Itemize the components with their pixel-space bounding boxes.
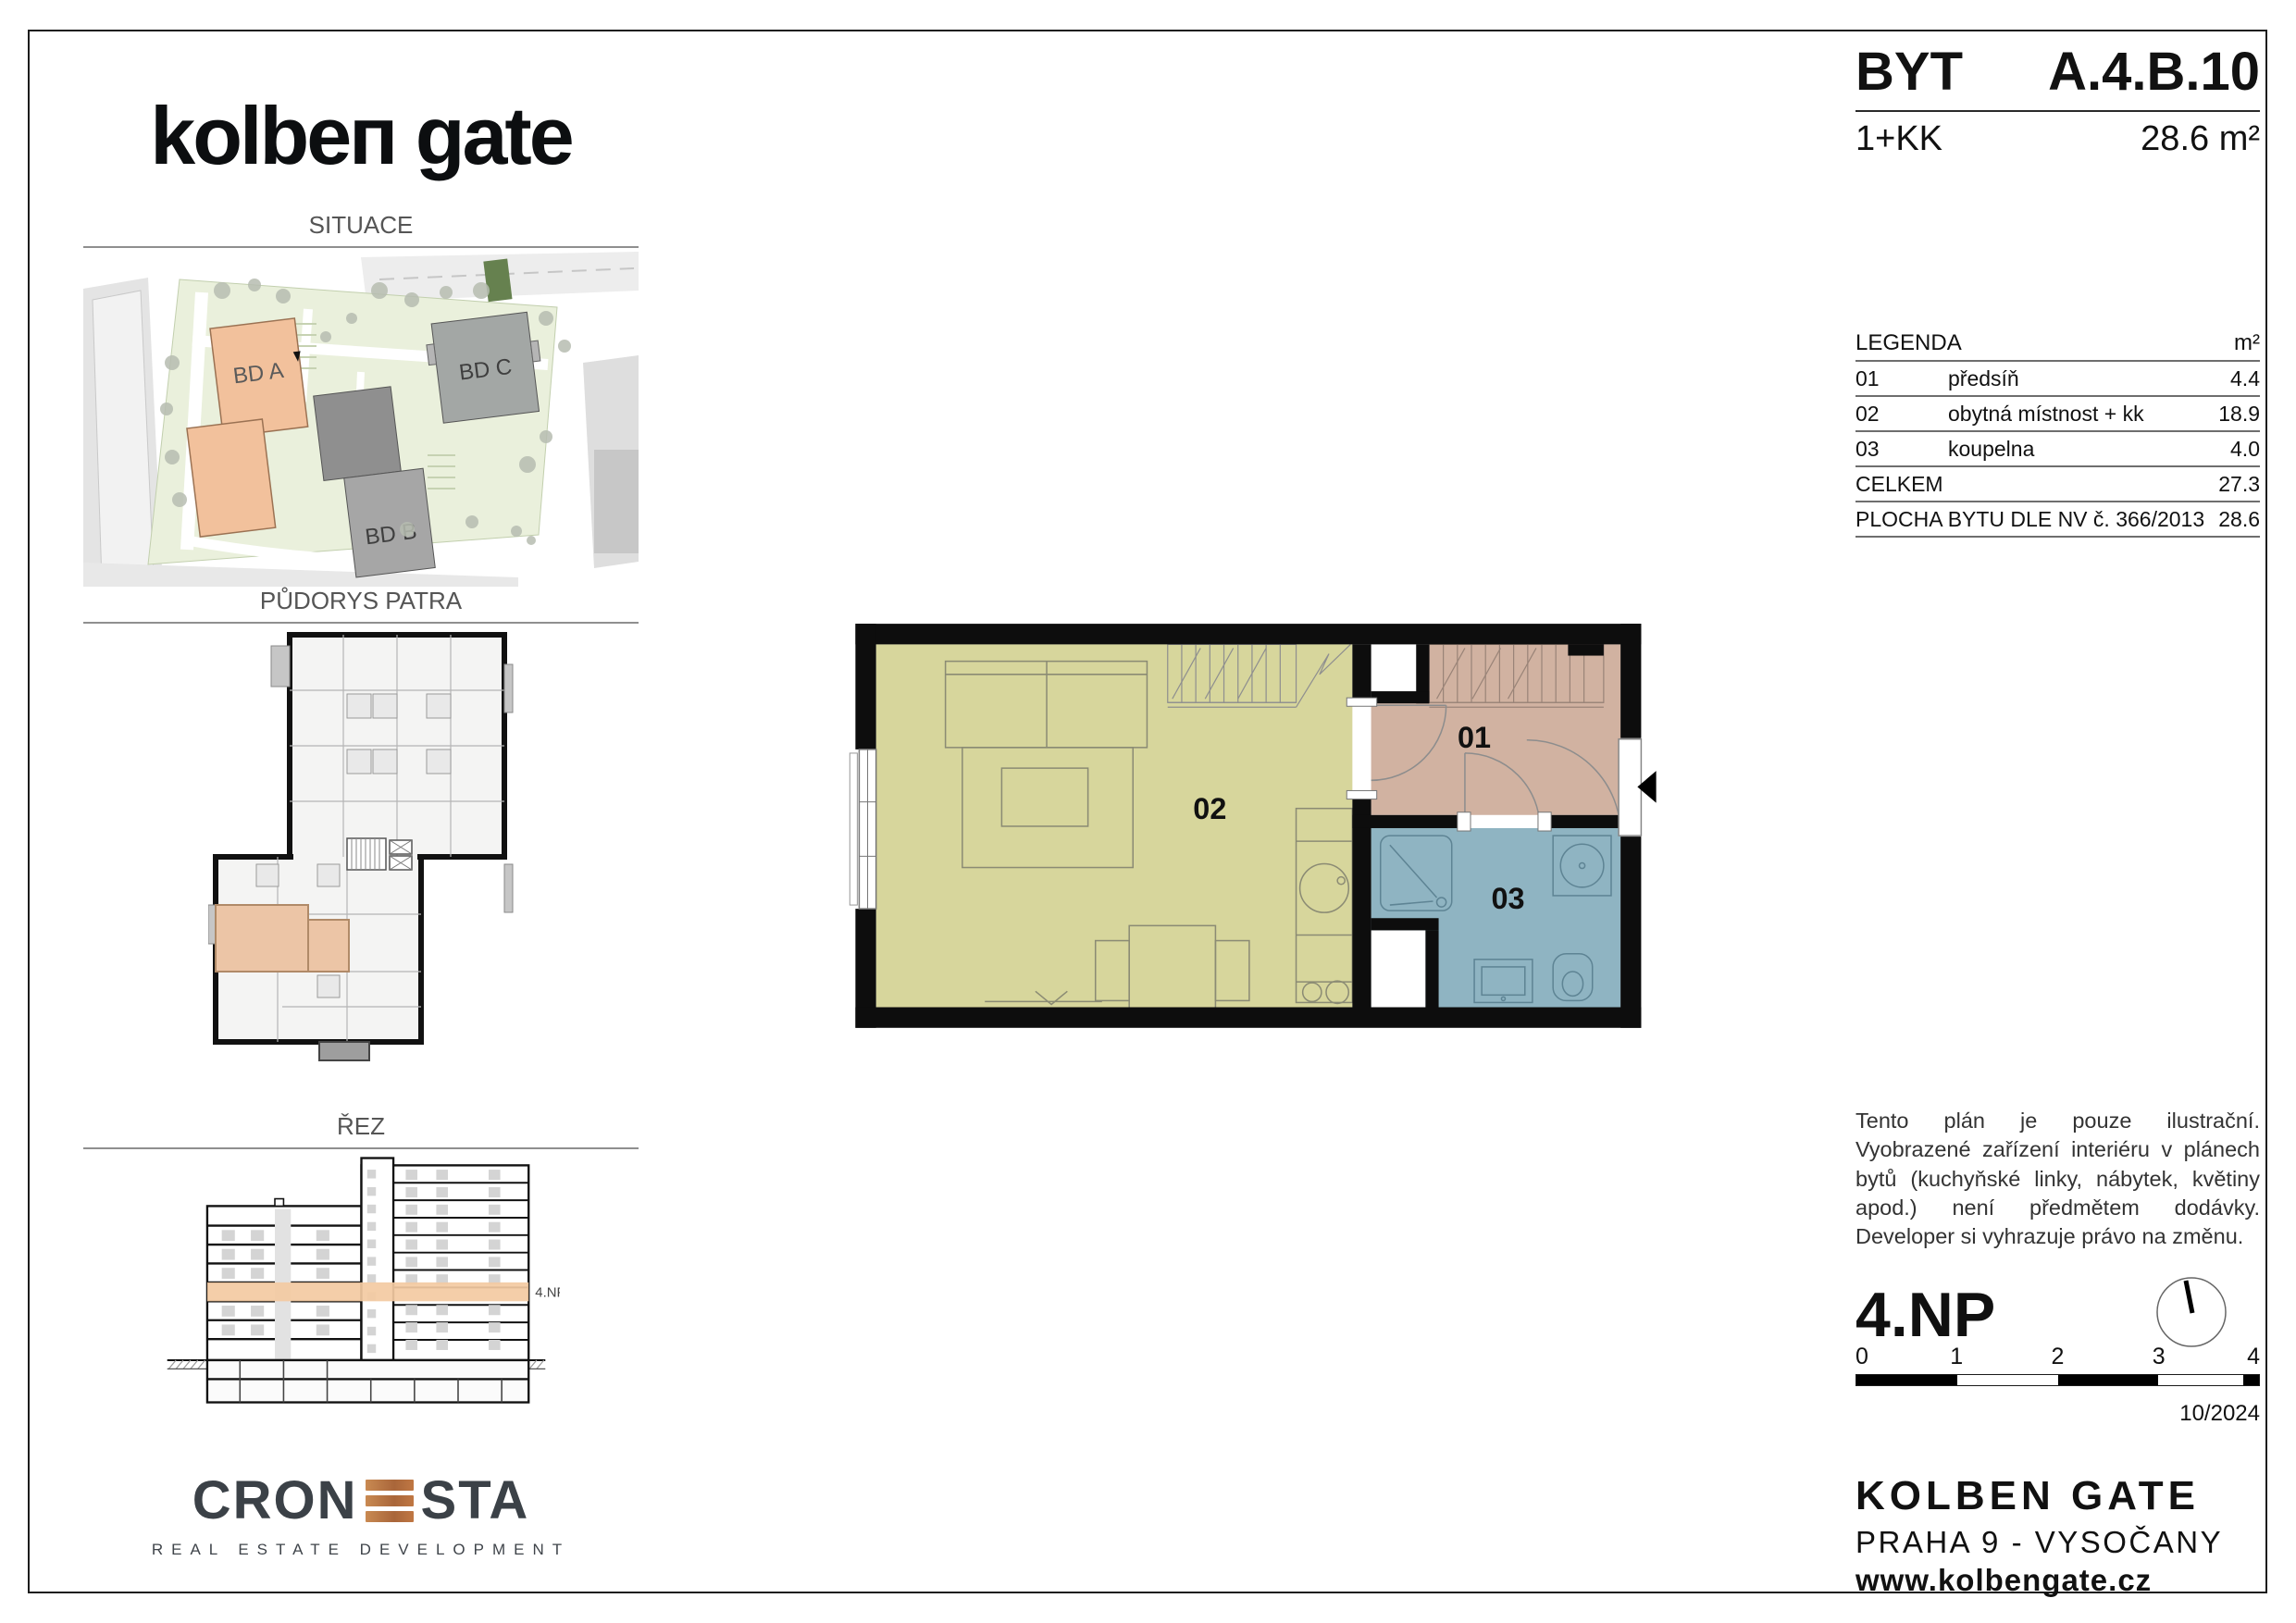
- room-living-fill: [876, 644, 1353, 1007]
- site-building-right: [594, 450, 639, 553]
- scale-tick-labels: 0 1 2 3 4: [1855, 1344, 2260, 1371]
- label-room-02: 02: [1193, 792, 1226, 825]
- unit-code: A.4.B.10: [2048, 41, 2260, 103]
- floor-overview-drawing: [208, 627, 514, 1062]
- disclaimer-text: Tento plán je pouze ilustrační. Vyobraze…: [1855, 1107, 2260, 1251]
- building-bd-b-tower: [314, 387, 402, 481]
- shaft-bottom: [1371, 930, 1426, 1007]
- cronesta-tagline: REAL ESTATE DEVELOPMENT: [83, 1541, 639, 1559]
- scale-bar: [1855, 1374, 2260, 1386]
- highlighted-unit: [216, 905, 308, 972]
- legend-row-01: 01 předsíň 4.4: [1855, 362, 2260, 397]
- basement: [207, 1360, 528, 1403]
- label-room-03: 03: [1492, 882, 1525, 915]
- north-compass-icon: [2154, 1275, 2228, 1349]
- lower-extension: [319, 1042, 369, 1060]
- section-core: [362, 1158, 394, 1360]
- legend-table: LEGENDA m² 01 předsíň 4.4 02 obytná míst…: [1855, 326, 2260, 538]
- unit-floor-plan: 02 01 03: [844, 616, 1669, 1043]
- label-room-01: 01: [1458, 721, 1491, 754]
- cronesta-left: CRON: [192, 1469, 358, 1531]
- section-header-situace: SITUACE: [83, 211, 639, 248]
- legend-row-03: 03 koupelna 4.0: [1855, 432, 2260, 467]
- entrance-door: [1619, 739, 1641, 836]
- section-header-pudorys: PŮDORYS PATRA: [83, 587, 639, 624]
- window-left: [850, 750, 875, 909]
- unit-type-label: BYT: [1855, 41, 1963, 103]
- kolben-gate-logo: kolbeп gate: [83, 89, 639, 183]
- project-name: KOLBEN GATE: [1855, 1473, 2260, 1519]
- hall-niche: [1568, 644, 1604, 655]
- title-divider: [1855, 110, 2260, 112]
- legend-statutory-row: PLOCHA BYTU DLE NV č. 366/2013 28.6: [1855, 502, 2260, 538]
- project-website: www.kolbengate.cz: [1855, 1563, 2260, 1598]
- cronesta-e-bars-icon: [366, 1475, 414, 1527]
- unit-disposition: 1+KK: [1855, 119, 1942, 159]
- cronesta-logo: CRON STA REAL ESTATE DEVELOPMENT: [83, 1469, 639, 1559]
- title-block: BYT A.4.B.10 1+KK 28.6 m²: [1855, 41, 2260, 159]
- floor-band-4np: [207, 1282, 528, 1301]
- section-drawing: 4.NP: [153, 1149, 560, 1415]
- unit-area: 28.6 m²: [2141, 119, 2260, 159]
- project-footer: KOLBEN GATE PRAHA 9 - VYSOČANY www.kolbe…: [1855, 1473, 2260, 1598]
- project-location: PRAHA 9 - VYSOČANY: [1855, 1525, 2260, 1560]
- building-bd-a-lower: [187, 419, 276, 537]
- stair-core: [347, 838, 412, 870]
- site-plan-drawing: BD A BD B BD C: [83, 252, 639, 587]
- legend-unit-header: m²: [2234, 330, 2260, 356]
- cronesta-right: STA: [421, 1469, 530, 1531]
- section-header-rez: ŘEZ: [83, 1112, 639, 1149]
- issue-date: 10/2024: [1855, 1401, 2260, 1427]
- shaft-top: [1371, 644, 1417, 691]
- section-floor-label: 4.NP: [535, 1285, 560, 1301]
- legend-title: LEGENDA: [1855, 330, 2234, 356]
- legend-total-row: CELKEM 27.3: [1855, 467, 2260, 502]
- legend-row-02: 02 obytná místnost + kk 18.9: [1855, 397, 2260, 432]
- highlighted-unit-part2: [308, 920, 349, 972]
